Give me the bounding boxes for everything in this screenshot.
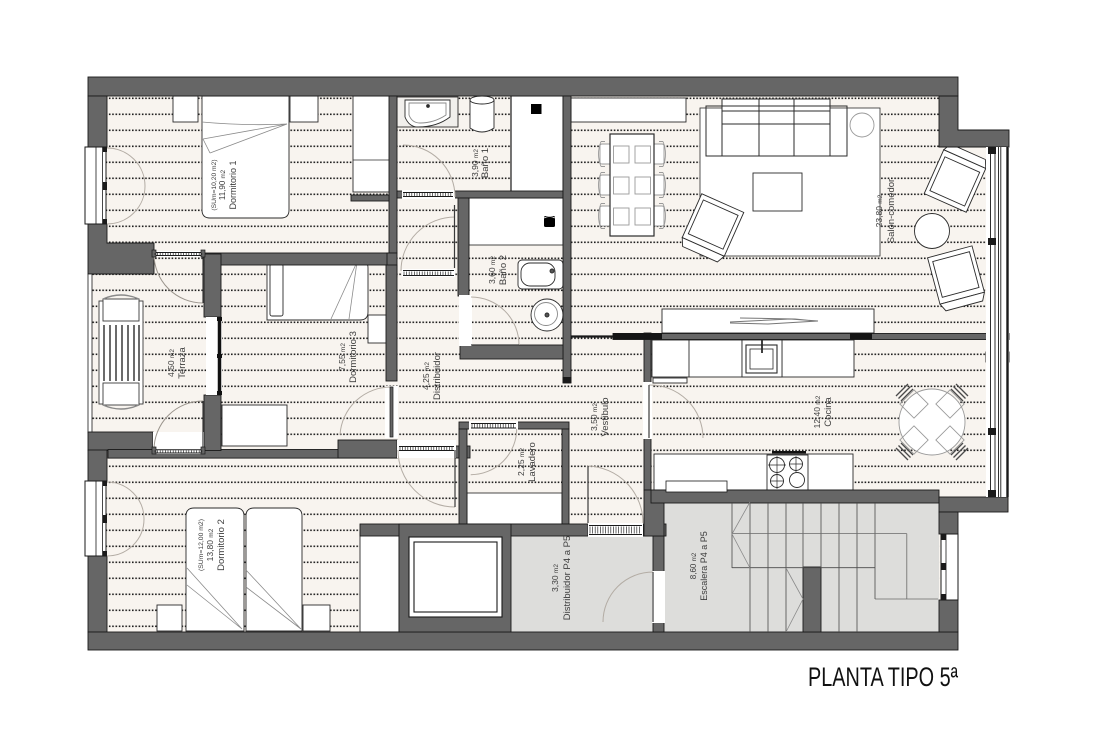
svg-text:Vestíbulo: Vestíbulo: [600, 397, 611, 436]
svg-text:Terraza: Terraza: [177, 346, 188, 378]
svg-text:PLANTA TIPO 5ª: PLANTA TIPO 5ª: [808, 662, 958, 692]
svg-text:(SUm=12,00 m2): (SUm=12,00 m2): [198, 519, 205, 571]
svg-text:Salón-comedor: Salón-comedor: [886, 179, 897, 243]
svg-text:Dormitorio 3: Dormitorio 3: [348, 331, 359, 383]
svg-text:(SUm=10,20 m2): (SUm=10,20 m2): [211, 159, 218, 210]
svg-text:Lavadero: Lavadero: [527, 442, 538, 482]
svg-text:Dormitorio 2: Dormitorio 2: [216, 519, 227, 571]
svg-text:Escalera P4 a P5: Escalera P4 a P5: [699, 531, 709, 601]
svg-text:11,90 m2: 11,90 m2: [218, 169, 227, 200]
svg-text:Distribuidor: Distribuidor: [432, 352, 443, 400]
svg-text:8,60 m2: 8,60 m2: [689, 552, 698, 579]
svg-text:Dormitorio 1: Dormitorio 1: [228, 160, 238, 209]
svg-text:Distribuidor P4 a P5: Distribuidor P4 a P5: [562, 536, 573, 620]
svg-text:Baño 1: Baño 1: [480, 148, 491, 178]
svg-text:Baño 2: Baño 2: [498, 255, 509, 285]
svg-text:Cocina: Cocina: [823, 397, 834, 427]
